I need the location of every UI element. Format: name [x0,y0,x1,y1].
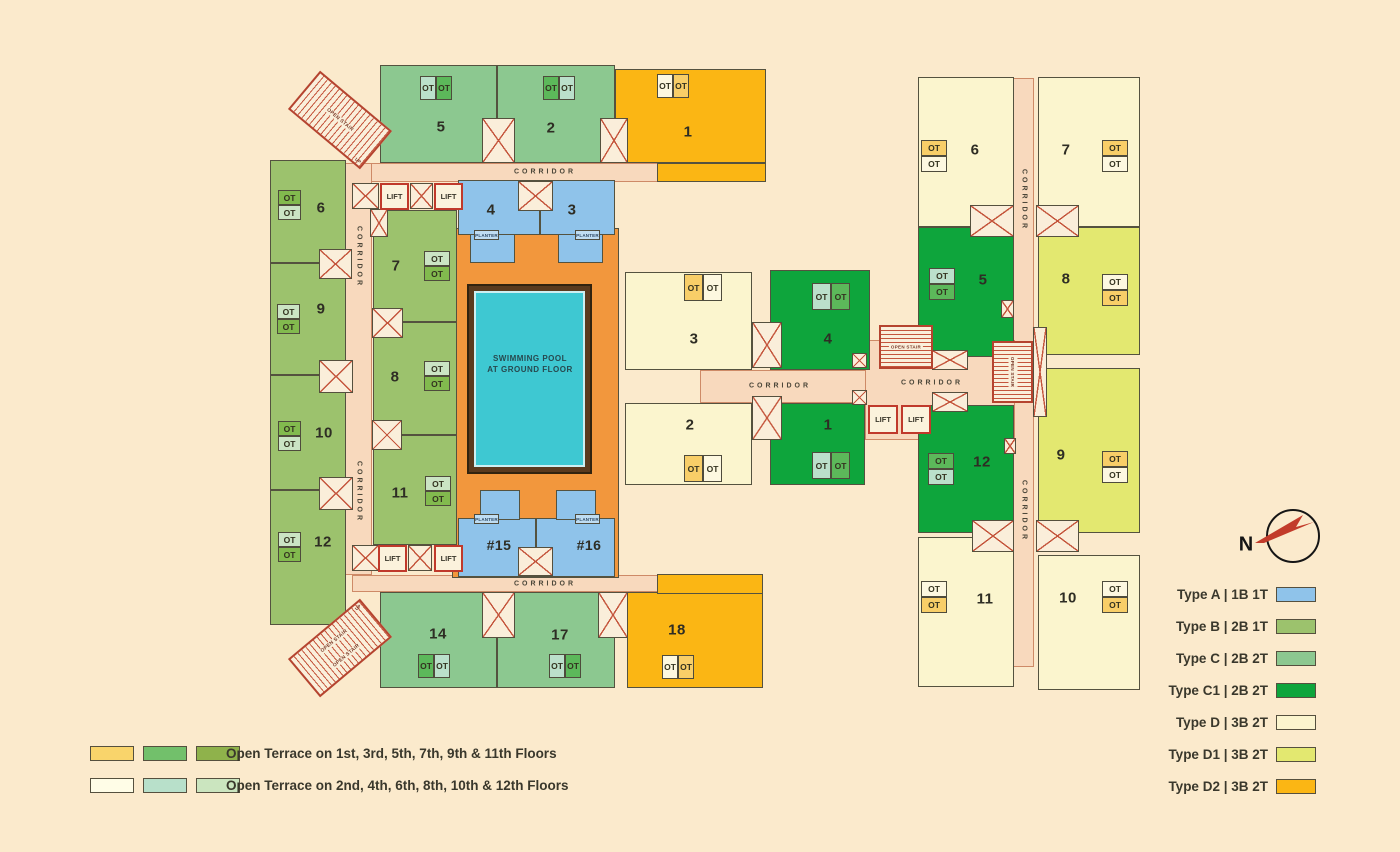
lift: LIFT [434,183,463,210]
ot-badge: OT [425,491,451,506]
ot-badge: OT [921,140,947,156]
ot-badge: OT [928,453,954,469]
open-stair-bottom-left: OPEN STAIR OPEN STAIR UP [283,593,398,705]
swimming-pool [469,286,590,472]
type-legend-swatch [1276,619,1316,634]
corridor-label: CORRIDOR [514,169,576,176]
ot-badge: OT [424,266,450,281]
shaft-box [1033,327,1047,417]
lift: LIFT [868,405,898,434]
unit-number: 4 [824,331,833,348]
ot-badge: OT [424,376,450,391]
type-legend-label: Type D | 3B 2T [1138,715,1268,730]
lift-label: LIFT [875,415,891,424]
ot-badge: OT [929,268,955,284]
shaft-box [972,520,1014,552]
shaft-box [482,118,515,163]
terrace-swatch [143,778,187,793]
open-stair-label: OPEN STAIR [889,345,923,350]
type-legend-label: Type B | 2B 1T [1138,619,1268,634]
lift: LIFT [378,545,407,572]
type-legend-swatch [1276,651,1316,666]
planter-label: PLANTER [475,233,498,238]
pool-label-line1: SWIMMING POOL [487,353,573,364]
unit-left-18-extension [657,574,763,594]
ot-badge: OT [1102,597,1128,613]
ot-badge: OT [684,455,703,482]
unit-right-10 [1038,555,1140,690]
type-legend-swatch [1276,587,1316,602]
unit-number: 10 [315,425,333,442]
ot-badge: OT [812,452,831,479]
type-legend-swatch [1276,683,1316,698]
ot-badge: OT [662,655,678,679]
unit-number: 5 [437,119,446,136]
lift: LIFT [380,183,409,210]
unit-number: #15 [487,537,512,553]
compass-needle-icon [1254,512,1316,546]
ot-badge: OT [278,205,301,220]
north-label: N [1239,534,1253,557]
ot-badge: OT [1102,581,1128,597]
planter-label: PLANTER [576,517,599,522]
ot-badge: OT [678,655,694,679]
ot-badge: OT [929,284,955,300]
ot-badge: OT [1102,156,1128,172]
terrace-swatch [143,746,187,761]
open-stair-wing: OPEN STAIR [879,325,933,369]
unit-left-1 [615,69,766,163]
open-stair-right-tower: OPEN STAIR [992,341,1033,403]
type-legend-row-a: Type A | 1B 1T [1138,584,1316,604]
unit-number: 8 [391,369,400,386]
lift-label: LIFT [441,192,457,201]
unit-number: 14 [429,626,447,643]
shaft-box [410,183,433,209]
ot-badge: OT [278,190,301,205]
shaft-box [319,477,353,510]
ot-badge: OT [425,476,451,491]
ot-badge: OT [921,156,947,172]
ot-badge: OT [424,251,450,266]
corridor-label: CORRIDOR [749,383,811,390]
ot-badge: OT [549,654,565,678]
unit-number: 9 [1057,447,1066,464]
shaft-box [352,545,379,571]
type-legend-label: Type D1 | 3B 2T [1138,747,1268,762]
shaft-box [319,360,353,393]
ot-badge: OT [424,361,450,376]
lift-label: LIFT [441,554,457,563]
shaft-box [600,118,628,163]
corridor-label: CORRIDOR [356,226,363,288]
ot-badge: OT [928,469,954,485]
shaft-box [852,353,867,368]
lift: LIFT [434,545,463,572]
ot-badge: OT [278,547,301,562]
shaft-box [482,592,515,638]
ot-badge: OT [559,76,575,100]
shaft-box [372,308,403,338]
corridor-label: CORRIDOR [514,581,576,588]
shaft-box [752,322,782,368]
unit-number: 1 [824,417,833,434]
ot-badge: OT [1102,274,1128,290]
shaft-box [932,392,968,412]
planter: PLANTER [474,230,499,240]
ot-badge: OT [831,283,850,310]
unit-number: 2 [686,417,695,434]
type-legend-row-d: Type D | 3B 2T [1138,712,1316,732]
ot-badge: OT [420,76,436,100]
ot-badge: OT [1102,290,1128,306]
unit-number: #16 [577,537,602,553]
unit-number: 5 [979,272,988,289]
type-legend-swatch [1276,747,1316,762]
unit-number: 6 [971,142,980,159]
shaft-box [932,350,968,370]
type-legend-row-d2: Type D2 | 3B 2T [1138,776,1316,796]
lift: LIFT [901,405,931,434]
shaft-box [408,545,432,571]
pool-label: SWIMMING POOL AT GROUND FLOOR [487,353,573,375]
unit-number: 12 [973,454,991,471]
terrace-legend-text-odd: Open Terrace on 1st, 3rd, 5th, 7th, 9th … [226,746,557,761]
stair-flight: OPEN STAIR UP [288,71,392,170]
lift-label: LIFT [387,192,403,201]
ot-badge: OT [418,654,434,678]
ot-badge: OT [565,654,581,678]
ot-badge: OT [921,581,947,597]
shaft-box [370,209,388,237]
shaft-box [970,205,1014,237]
lift-label: LIFT [385,554,401,563]
planter-label: PLANTER [475,517,498,522]
planter: PLANTER [575,514,600,524]
corridor-label: CORRIDOR [1021,169,1028,231]
ot-badge: OT [703,274,722,301]
ot-badge: OT [278,421,301,436]
ot-badge: OT [436,76,452,100]
type-legend-row-d1: Type D1 | 3B 2T [1138,744,1316,764]
floor-plan-canvas: LIFT LIFT LIFT LIFT LIFT LIFT OPEN STAIR… [0,0,1400,852]
ot-badge: OT [684,274,703,301]
shaft-box [598,592,628,638]
ot-badge: OT [277,304,300,319]
stair-flight: OPEN STAIR OPEN STAIR UP [288,599,392,698]
pool-label-line2: AT GROUND FLOOR [487,364,573,375]
unit-number: 6 [317,200,326,217]
unit-number: 3 [690,331,699,348]
type-legend-label: Type A | 1B 1T [1138,587,1268,602]
shaft-box [352,183,379,209]
unit-left-1-extension [657,163,766,182]
unit-left-18 [627,592,763,688]
ot-badge: OT [1102,140,1128,156]
unit-number: 9 [317,301,326,318]
ot-badge: OT [277,319,300,334]
terrace-swatch [90,778,134,793]
unit-number: 7 [392,258,401,275]
type-legend-row-b: Type B | 2B 1T [1138,616,1316,636]
shaft-box [752,396,782,440]
lift-label: LIFT [908,415,924,424]
unit-number: 11 [392,485,409,502]
ot-badge: OT [657,74,673,98]
unit-number: 1 [684,124,693,141]
ot-badge: OT [1102,451,1128,467]
unit-number: 3 [568,202,577,219]
type-legend-row-c: Type C | 2B 2T [1138,648,1316,668]
type-legend-label: Type C1 | 2B 2T [1138,683,1268,698]
planter: PLANTER [474,514,499,524]
corridor-label: CORRIDOR [901,380,963,387]
up-label: UP [354,604,362,612]
open-stair-label: OPEN STAIR [324,106,356,135]
up-label: UP [354,157,362,165]
corridor-label: CORRIDOR [1021,480,1028,542]
terrace-legend-text-even: Open Terrace on 2nd, 4th, 6th, 8th, 10th… [226,778,569,793]
shaft-box [372,420,402,450]
ot-badge: OT [1102,467,1128,483]
unit-number: 4 [487,202,496,219]
open-stair-label: OPEN STAIR [1008,357,1017,387]
unit-number: 7 [1062,142,1071,159]
planter-label: PLANTER [576,233,599,238]
shaft-box [1036,520,1079,552]
shaft-box [1001,300,1014,318]
ot-badge: OT [278,436,301,451]
ot-badge: OT [278,532,301,547]
ot-badge: OT [831,452,850,479]
ot-badge: OT [543,76,559,100]
ot-badge: OT [703,455,722,482]
shaft-box [319,249,352,279]
shaft-box [518,181,553,211]
corridor-label: CORRIDOR [356,461,363,523]
terrace-swatch [90,746,134,761]
unit-number: 17 [551,627,569,644]
open-stair-label: OPEN STAIR [330,641,362,670]
unit-number: 2 [547,120,556,137]
type-legend-label: Type C | 2B 2T [1138,651,1268,666]
unit-number: 10 [1059,590,1077,607]
ot-badge: OT [673,74,689,98]
type-legend-swatch [1276,779,1316,794]
unit-number: 11 [977,591,994,608]
unit-number: 8 [1062,271,1071,288]
unit-number: 18 [668,622,686,639]
shaft-box [518,547,553,576]
unit-number: 12 [314,534,332,551]
ot-badge: OT [434,654,450,678]
type-legend-swatch [1276,715,1316,730]
type-legend-row-c1: Type C1 | 2B 2T [1138,680,1316,700]
ot-badge: OT [921,597,947,613]
shaft-box [852,390,867,405]
planter: PLANTER [575,230,600,240]
ot-badge: OT [812,283,831,310]
shaft-box [1004,438,1016,454]
type-legend-label: Type D2 | 3B 2T [1138,779,1268,794]
open-stair-top-left: OPEN STAIR UP [283,63,398,178]
shaft-box [1036,205,1079,237]
